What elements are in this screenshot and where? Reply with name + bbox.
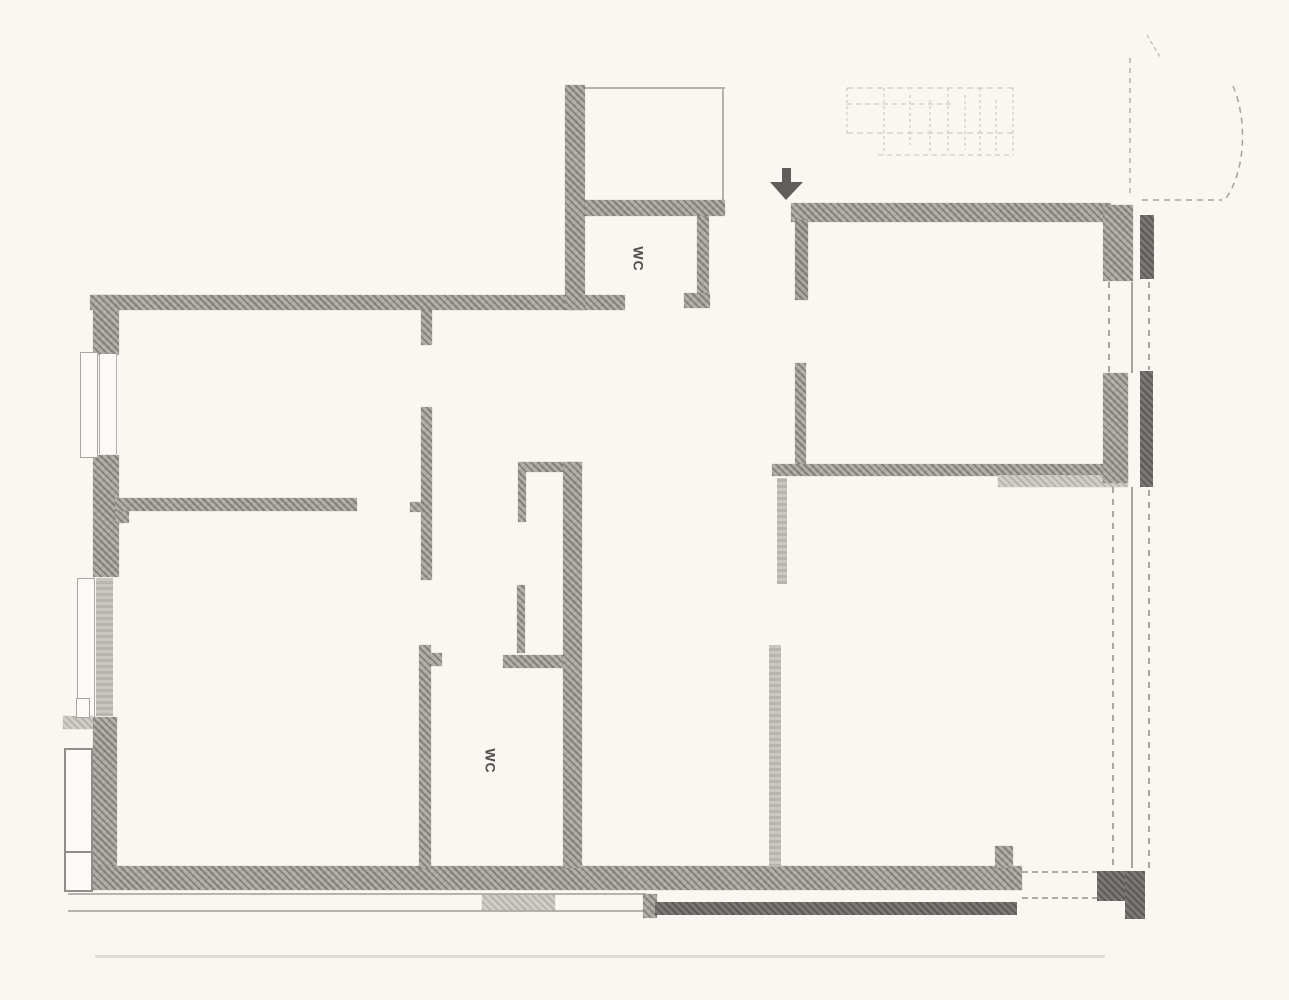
- bath-duct-left: [518, 472, 526, 522]
- hall-partition-upper: [795, 220, 808, 300]
- entrance-arrow-icon: [770, 168, 803, 200]
- balcony-left: [64, 748, 93, 892]
- entry-wall-top-right: [791, 203, 1111, 222]
- window-left-upper-frame: [80, 352, 98, 458]
- shaft-outline-right: [722, 87, 724, 203]
- center-partition-mid: [421, 407, 432, 580]
- shaft-wall-vertical: [565, 85, 585, 310]
- scan-artifact-line: [95, 955, 1105, 958]
- door-swing-arc: [1224, 86, 1243, 201]
- center-partition-lower: [419, 645, 431, 868]
- terrace-threshold: [482, 895, 555, 910]
- staircase-treads: [847, 88, 1013, 155]
- door-gap-dash-lower: [1022, 897, 1098, 899]
- corner-block-b: [1125, 871, 1145, 919]
- shaft-outline-top: [585, 87, 725, 89]
- wc-top-label: WC: [621, 241, 657, 277]
- glazing-line-b2: [1131, 487, 1133, 868]
- glazing-line-b1: [1112, 487, 1114, 868]
- facade-block-mid: [1103, 373, 1128, 483]
- terrace-dark-bar: [655, 902, 1017, 915]
- terrace-line-top: [68, 893, 646, 895]
- facade-bar-mid: [1140, 371, 1153, 487]
- interior-wall-left-horizontal: [115, 498, 357, 511]
- center-partition-stub: [421, 310, 432, 345]
- hall-partition-lower: [795, 363, 806, 468]
- bottom-wall-stub: [995, 846, 1013, 868]
- light-partition-lower: [769, 645, 781, 867]
- bath-thick-wall: [563, 462, 582, 868]
- wc-top-wall-vertical: [697, 216, 709, 295]
- center-partition-tick: [410, 502, 422, 512]
- interior-wall-left-step: [115, 511, 129, 523]
- wc-top-wall-horizontal: [585, 200, 725, 216]
- window-left-lower-frame: [77, 578, 95, 718]
- wc-bottom-label: WC: [473, 743, 509, 779]
- wc-top-wall-foot: [684, 293, 710, 308]
- glazing-line-b3: [1148, 490, 1150, 868]
- facade-block-upper: [1103, 205, 1133, 281]
- wc-bottom-label-text: WC: [483, 748, 499, 773]
- exterior-wall-left-upper: [93, 295, 119, 355]
- light-partition-upper: [777, 478, 787, 584]
- floor-plan: WC WC: [0, 0, 1289, 1000]
- scan-diagonal-mark: [1147, 35, 1160, 57]
- exterior-wall-left-lower: [93, 717, 117, 868]
- window-left-lower-glass: [96, 578, 113, 716]
- bath-wall-bottom: [503, 655, 563, 668]
- exterior-wall-top: [90, 295, 625, 310]
- terrace-line-bottom: [68, 910, 646, 912]
- wc-top-label-text: WC: [631, 246, 647, 271]
- window-sill-small: [76, 698, 90, 718]
- facade-bar-upper: [1140, 215, 1154, 279]
- center-partition-tab: [430, 653, 442, 666]
- door-gap-dash-upper: [1022, 871, 1098, 873]
- bath-wall-left: [517, 585, 525, 653]
- glazing-line-a2: [1131, 282, 1133, 373]
- glazing-line-a3: [1148, 282, 1150, 370]
- exterior-wall-bottom: [93, 866, 1022, 890]
- balcony-divider: [66, 851, 91, 853]
- window-left-upper-glass: [99, 354, 117, 454]
- glazing-line-a1: [1108, 282, 1110, 373]
- corner-block-a: [1097, 871, 1125, 901]
